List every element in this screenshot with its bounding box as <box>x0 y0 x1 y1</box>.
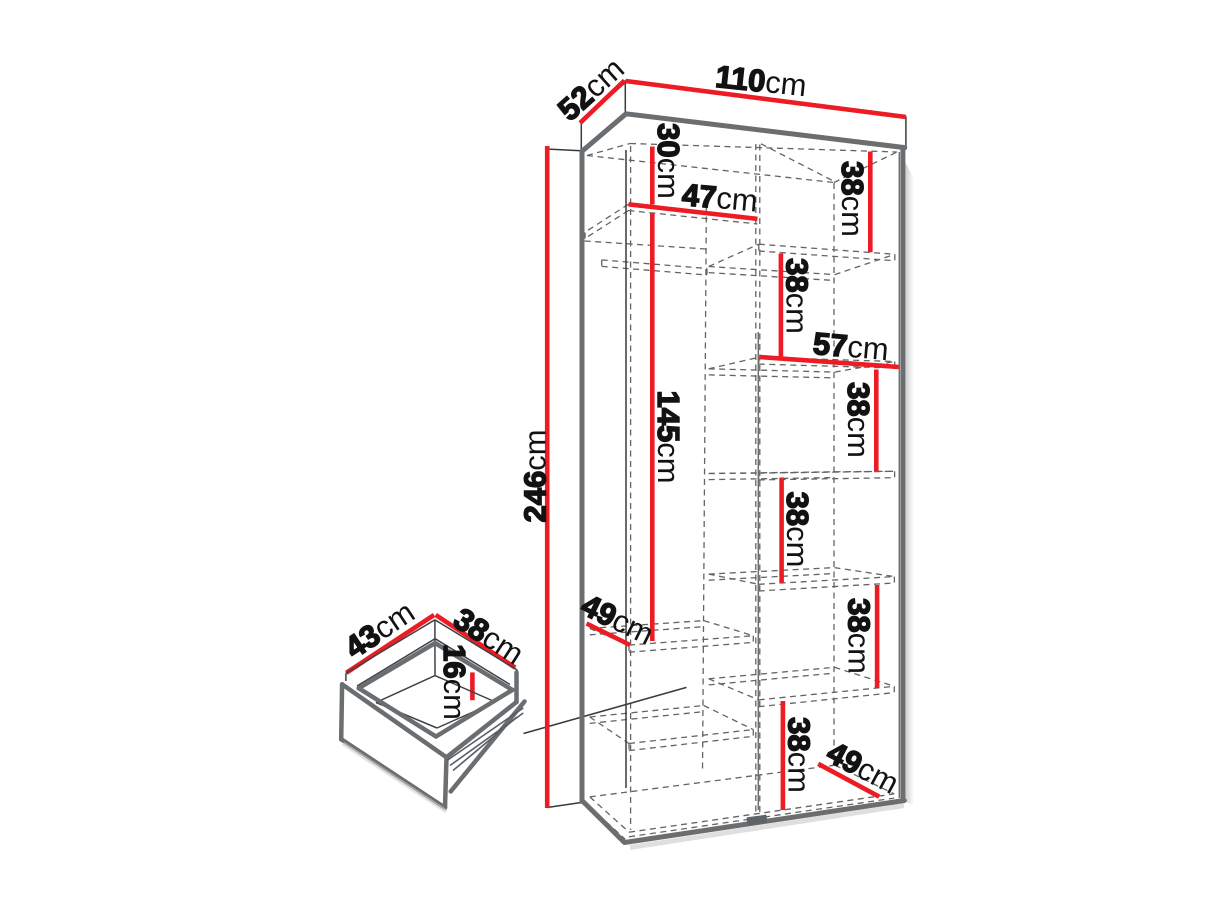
svg-text:246cm: 246cm <box>518 429 553 522</box>
svg-text:30cm: 30cm <box>651 123 686 199</box>
svg-text:16cm: 16cm <box>437 644 472 720</box>
svg-text:38cm: 38cm <box>835 161 870 237</box>
svg-text:38cm: 38cm <box>842 598 877 674</box>
svg-text:38cm: 38cm <box>781 717 816 793</box>
svg-text:47cm: 47cm <box>681 177 760 218</box>
svg-text:38cm: 38cm <box>779 258 814 334</box>
svg-text:145cm: 145cm <box>651 390 686 483</box>
svg-text:38cm: 38cm <box>780 492 815 568</box>
svg-text:57cm: 57cm <box>812 326 891 367</box>
svg-text:38cm: 38cm <box>841 382 876 458</box>
